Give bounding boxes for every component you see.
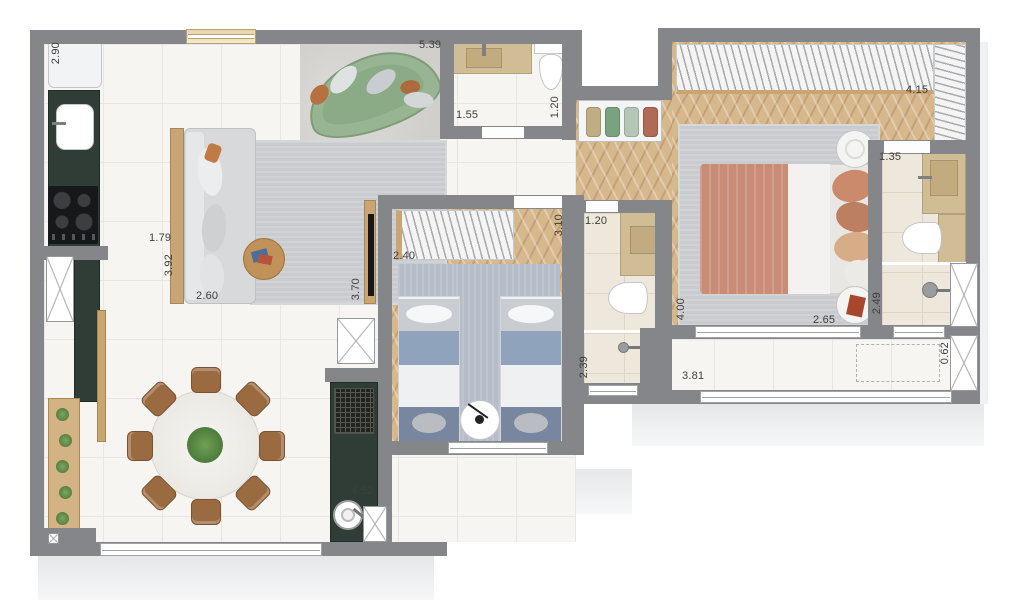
dimension-label: 1.20: [585, 215, 607, 227]
dimension-label: 2.40: [393, 250, 415, 262]
floor-plan: 2.905.391.551.201.793.922.603.702.403.10…: [0, 0, 1024, 611]
dimension-label: 2.49: [871, 292, 883, 314]
dimension-label: 1.79: [149, 232, 171, 244]
dimension-label: 3.92: [163, 254, 175, 276]
dimension-label: 1.20: [549, 96, 561, 118]
dimension-label: 2.39: [578, 356, 590, 378]
dimension-label: 4.15: [906, 84, 928, 96]
dimension-label: 3.70: [350, 278, 362, 300]
dimension-label: 3.81: [682, 370, 704, 382]
dimension-label: 2.65: [813, 314, 835, 326]
dimension-labels-layer: 2.905.391.551.201.793.922.603.702.403.10…: [0, 0, 1024, 611]
dimension-label: 5.39: [419, 39, 441, 51]
dimension-label: 0.62: [939, 342, 951, 364]
dimension-label: 2.90: [50, 42, 62, 64]
dimension-label: 4.52: [351, 485, 373, 497]
dimension-label: 4.00: [675, 298, 687, 320]
dimension-label: 2.60: [196, 290, 218, 302]
dimension-label: 1.55: [456, 109, 478, 121]
dimension-label: 3.10: [553, 214, 565, 236]
dimension-label: 1.35: [879, 151, 901, 163]
